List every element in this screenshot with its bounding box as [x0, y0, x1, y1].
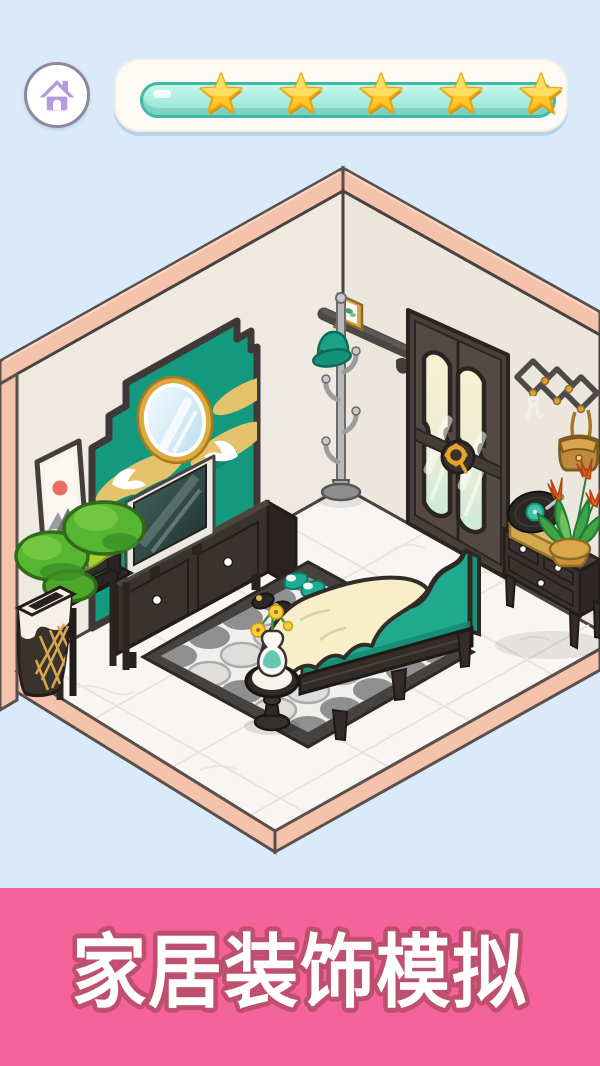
- star-row: [114, 68, 568, 122]
- star-icon: [354, 68, 408, 122]
- star-progress-bar: [114, 58, 568, 132]
- star-icon: [434, 68, 488, 122]
- app-screen: 家居装饰模拟: [0, 0, 600, 1066]
- home-icon: [31, 69, 83, 121]
- star-icon: [194, 68, 248, 122]
- star-icon: [514, 68, 568, 122]
- header: [0, 0, 600, 150]
- star-icon: [274, 68, 328, 122]
- gold-door-handle[interactable]: [442, 441, 474, 473]
- title-banner: 家居装饰模拟: [0, 888, 600, 1066]
- left-wall-outer-edge: [0, 374, 17, 710]
- banner-title: 家居装饰模拟: [72, 926, 528, 1019]
- home-button[interactable]: [24, 62, 90, 128]
